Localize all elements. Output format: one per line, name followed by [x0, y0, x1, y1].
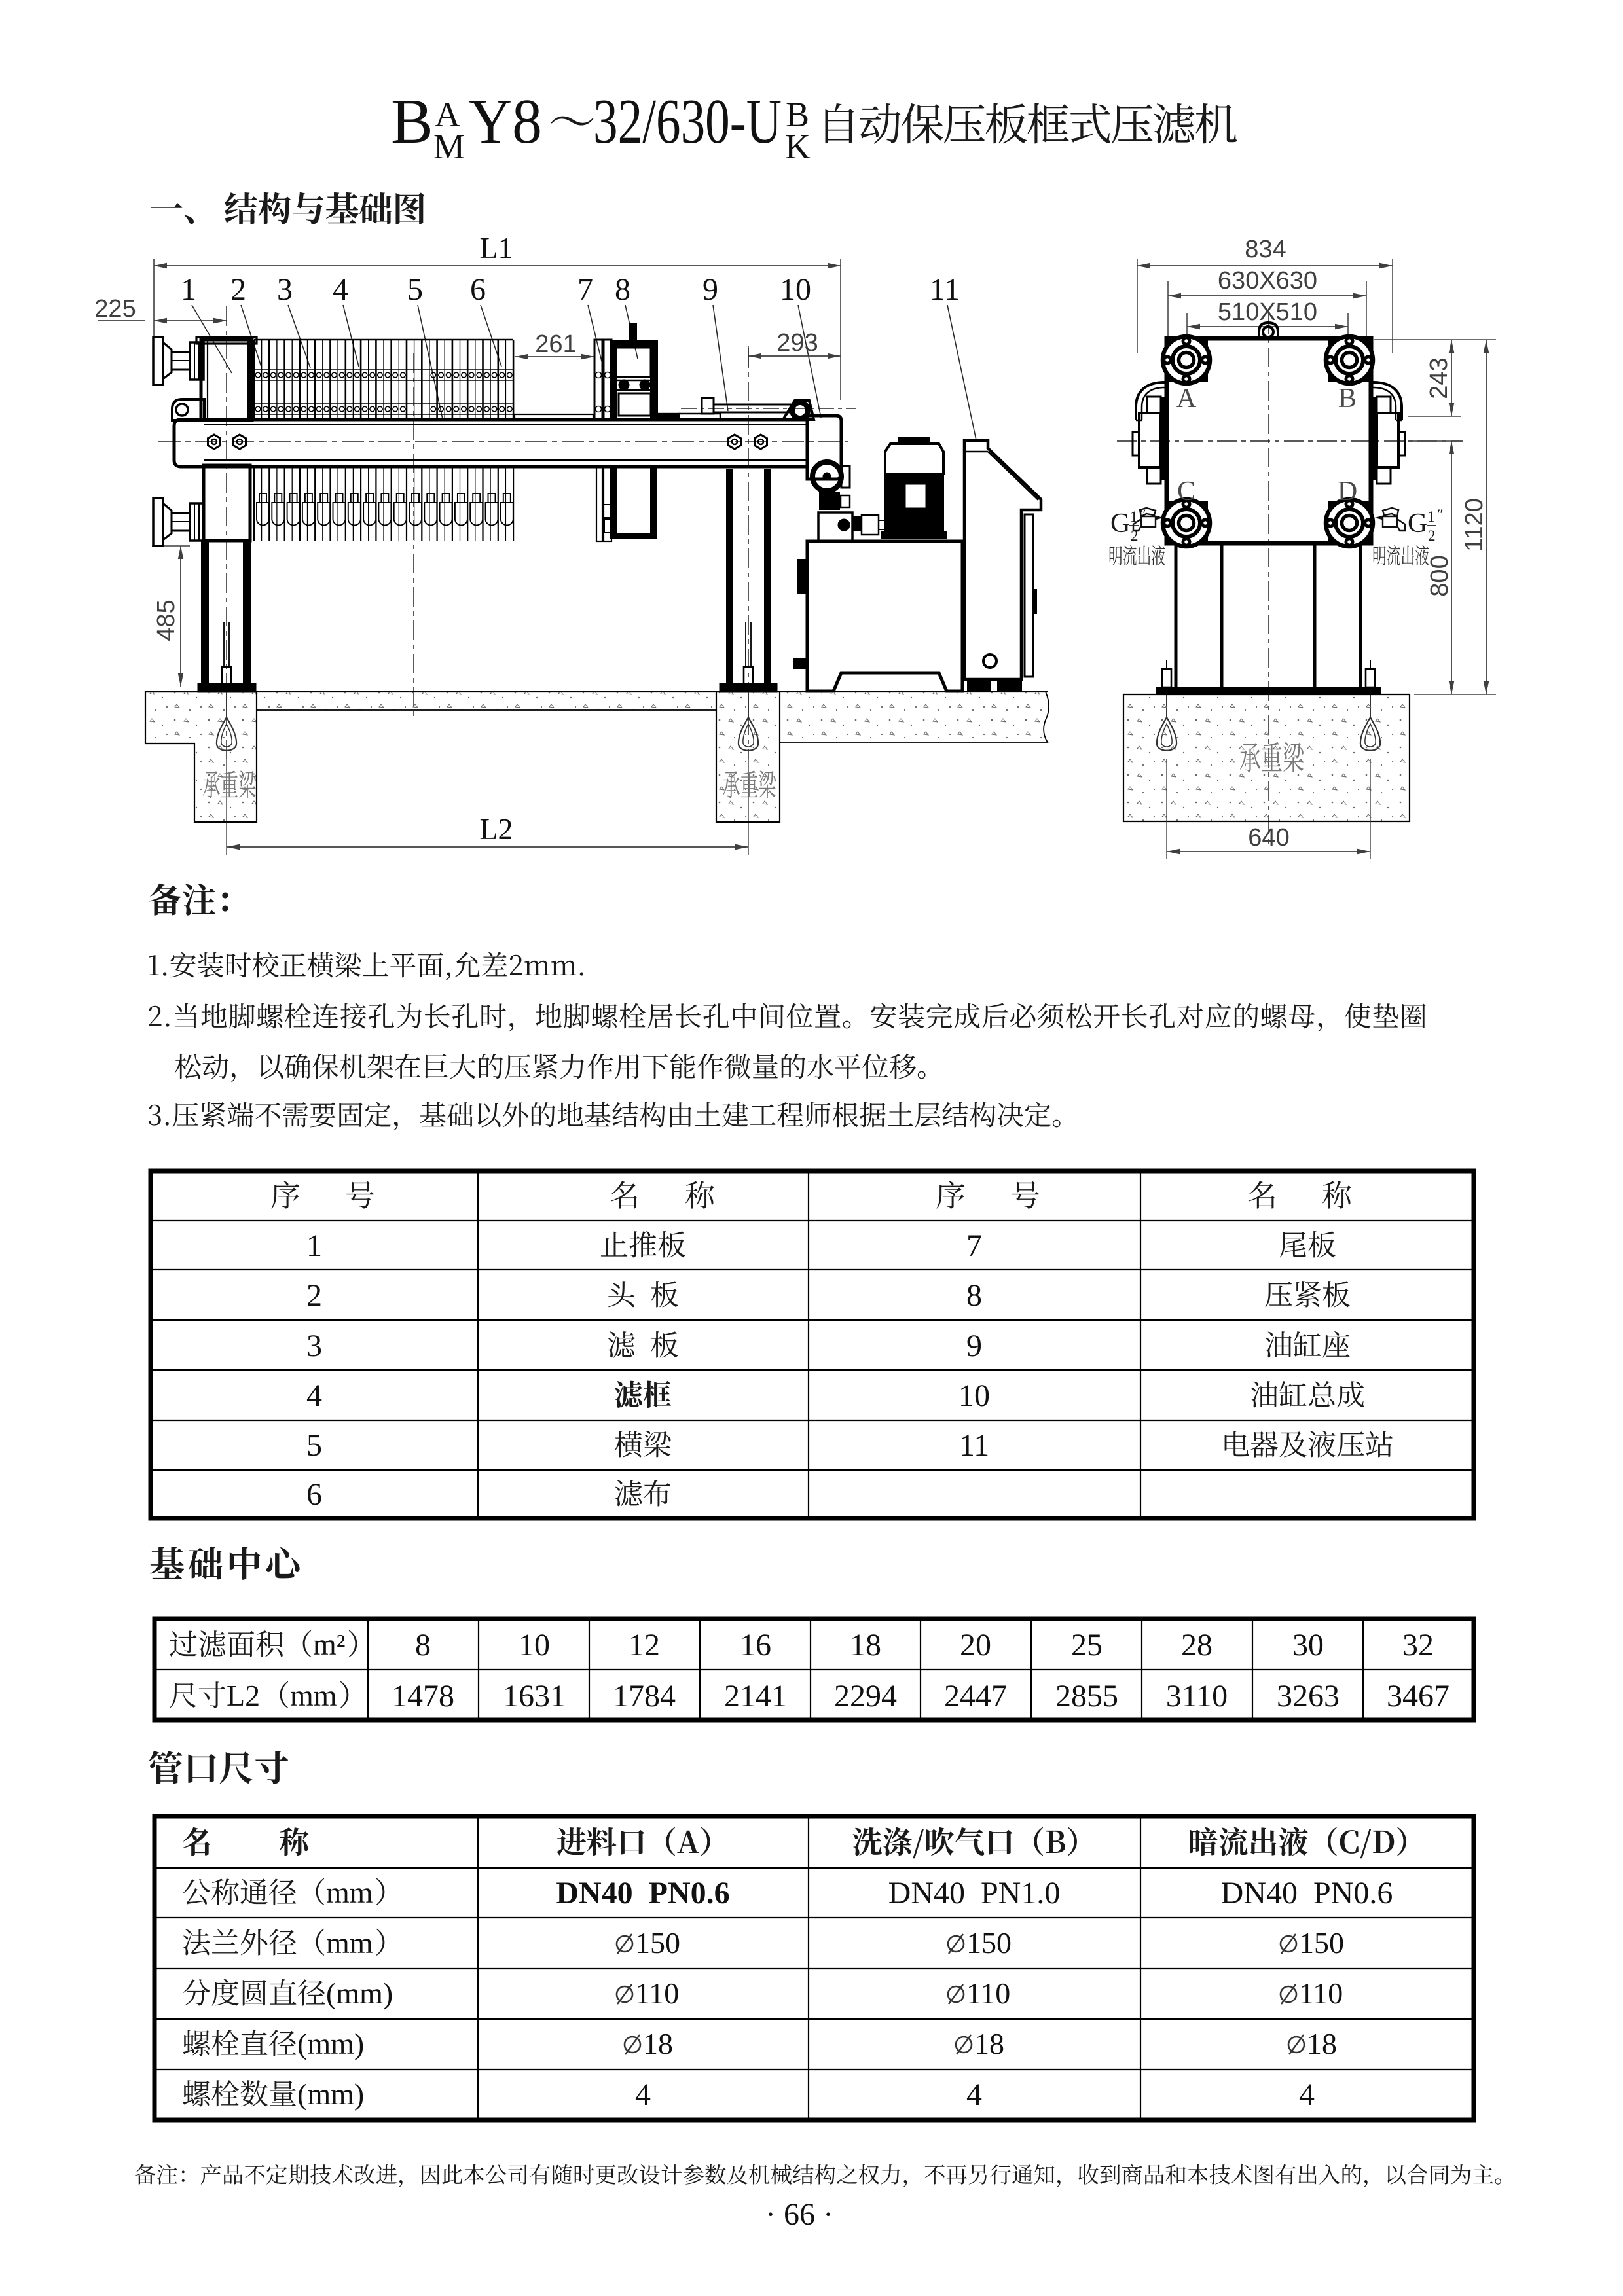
svg-text:2: 2	[230, 272, 246, 307]
svg-text:1: 1	[1130, 509, 1138, 525]
svg-text:B: B	[391, 86, 433, 156]
svg-text:K: K	[785, 127, 811, 166]
svg-text:(mm): (mm)	[297, 2077, 364, 2111]
svg-text:9: 9	[966, 1329, 982, 1363]
svg-text:2855: 2855	[1055, 1679, 1118, 1713]
svg-text:7: 7	[966, 1229, 982, 1263]
svg-text:11: 11	[930, 272, 960, 307]
svg-text:2447: 2447	[944, 1679, 1007, 1713]
svg-text:4: 4	[333, 272, 348, 307]
svg-text:L2: L2	[479, 812, 513, 846]
svg-text:mm: mm	[290, 1679, 337, 1712]
svg-text:30: 30	[1292, 1628, 1324, 1662]
svg-text:225: 225	[94, 295, 136, 323]
svg-text:(mm): (mm)	[297, 2027, 364, 2060]
svg-text:3263: 3263	[1277, 1679, 1340, 1713]
svg-text:150: 150	[966, 1926, 1012, 1960]
svg-text:1120: 1120	[1461, 498, 1488, 552]
svg-text:1: 1	[1427, 509, 1435, 525]
svg-text:8: 8	[615, 272, 630, 307]
svg-text:(mm): (mm)	[326, 1977, 393, 2010]
svg-text:16: 16	[740, 1628, 771, 1662]
svg-text:A: A	[1176, 384, 1197, 414]
svg-text:12: 12	[629, 1628, 660, 1662]
svg-text:· 66 ·: · 66 ·	[765, 2197, 833, 2232]
svg-text:243: 243	[1425, 357, 1453, 399]
svg-text:640: 640	[1248, 824, 1289, 852]
svg-text:DN40 PN0.6: DN40 PN0.6	[1221, 1876, 1393, 1910]
svg-text:2: 2	[1428, 528, 1436, 544]
svg-text:3: 3	[306, 1329, 322, 1363]
svg-text:28: 28	[1181, 1628, 1213, 1662]
svg-text:DN40 PN0.6: DN40 PN0.6	[556, 1876, 729, 1910]
svg-text:4: 4	[306, 1378, 322, 1413]
svg-text:20: 20	[960, 1628, 991, 1662]
svg-text:1: 1	[306, 1229, 322, 1263]
svg-text:3110: 3110	[1166, 1679, 1228, 1713]
svg-text:150: 150	[635, 1926, 680, 1960]
svg-text:18: 18	[1307, 2027, 1337, 2060]
svg-text:18: 18	[974, 2027, 1004, 2060]
svg-text:5: 5	[407, 272, 423, 307]
svg-text:Y8: Y8	[469, 86, 542, 156]
svg-text:32/630-U: 32/630-U	[593, 86, 782, 156]
svg-text:B: B	[1338, 384, 1357, 414]
svg-text:2: 2	[306, 1278, 322, 1313]
svg-text:110: 110	[966, 1977, 1010, 2010]
svg-text:10: 10	[519, 1628, 550, 1662]
svg-text:8: 8	[966, 1278, 982, 1313]
svg-text:11: 11	[959, 1428, 989, 1463]
svg-text:L2: L2	[227, 1679, 260, 1712]
svg-text:7: 7	[577, 272, 593, 307]
svg-text:″: ″	[1437, 507, 1444, 523]
svg-text:6: 6	[470, 272, 486, 307]
svg-text:485: 485	[153, 600, 180, 641]
svg-text:4: 4	[966, 2077, 982, 2112]
svg-text:G: G	[1110, 509, 1130, 539]
svg-text:32: 32	[1402, 1628, 1434, 1662]
svg-text:m²: m²	[313, 1628, 346, 1661]
svg-text:G: G	[1408, 509, 1427, 539]
svg-text:110: 110	[635, 1977, 679, 2010]
svg-text:8: 8	[415, 1628, 431, 1662]
svg-text:1784: 1784	[613, 1679, 676, 1713]
svg-text:10: 10	[780, 272, 811, 307]
svg-text:1631: 1631	[503, 1679, 566, 1713]
svg-text:4: 4	[1299, 2077, 1315, 2112]
svg-text:261: 261	[535, 331, 576, 358]
svg-text:18: 18	[643, 2027, 673, 2060]
svg-text:150: 150	[1299, 1926, 1344, 1960]
svg-text:D: D	[1338, 476, 1357, 507]
svg-text:630X630: 630X630	[1218, 267, 1317, 295]
svg-text:25: 25	[1071, 1628, 1103, 1662]
svg-text:mm: mm	[326, 1926, 373, 1960]
svg-text:18: 18	[850, 1628, 881, 1662]
svg-text:DN40 PN1.0: DN40 PN1.0	[888, 1876, 1061, 1910]
svg-text:″: ″	[1140, 507, 1146, 523]
svg-text:1478: 1478	[392, 1679, 454, 1713]
svg-text:2: 2	[1131, 528, 1139, 544]
svg-text:3: 3	[277, 272, 293, 307]
svg-text:110: 110	[1299, 1977, 1343, 2010]
svg-text:800: 800	[1426, 555, 1453, 596]
svg-text:9: 9	[702, 272, 718, 307]
svg-text:3467: 3467	[1387, 1679, 1450, 1713]
svg-text:2141: 2141	[724, 1679, 787, 1713]
svg-text:L1: L1	[479, 231, 513, 264]
svg-text:6: 6	[306, 1477, 322, 1512]
svg-text:4: 4	[635, 2077, 651, 2112]
svg-text:293: 293	[776, 329, 818, 357]
svg-text:1: 1	[181, 272, 196, 307]
svg-text:mm: mm	[326, 1876, 373, 1909]
svg-text:10: 10	[958, 1378, 990, 1413]
svg-text:2294: 2294	[834, 1679, 897, 1713]
svg-text:834: 834	[1245, 236, 1286, 263]
svg-text:5: 5	[306, 1428, 322, 1463]
svg-text:C: C	[1177, 476, 1195, 507]
svg-text:M: M	[433, 127, 465, 166]
